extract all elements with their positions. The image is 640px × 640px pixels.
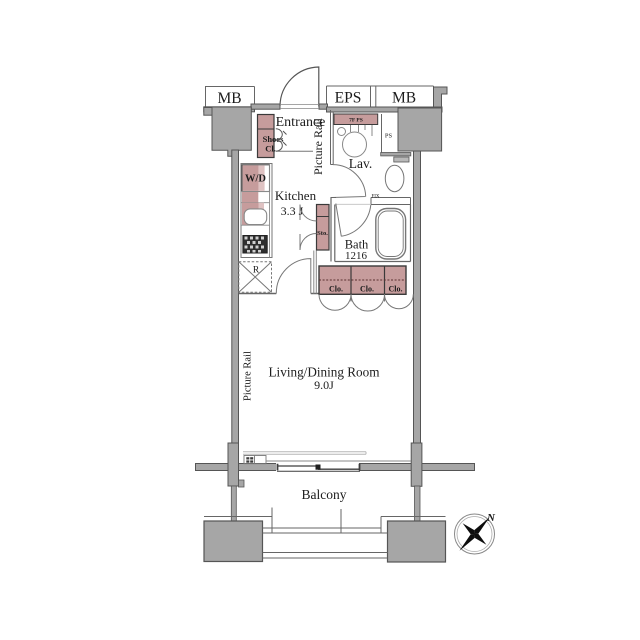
svg-text:PS: PS [385, 133, 393, 140]
svg-text:7F PS: 7F PS [349, 118, 363, 124]
svg-text:N: N [486, 512, 496, 524]
svg-text:Kitchen: Kitchen [275, 188, 317, 203]
svg-text:MB: MB [392, 90, 416, 107]
svg-text:R: R [253, 266, 260, 276]
svg-text:FIX: FIX [371, 195, 379, 200]
svg-text:EPS: EPS [335, 90, 362, 107]
svg-text:Clo.: Clo. [389, 285, 403, 294]
svg-text:Picture Rail: Picture Rail [243, 351, 254, 401]
svg-text:Cl.: Cl. [265, 143, 276, 153]
svg-text:9.0J: 9.0J [314, 378, 334, 392]
svg-text:Picture Rail: Picture Rail [311, 117, 325, 175]
svg-text:Balcony: Balcony [302, 487, 347, 502]
svg-text:MB: MB [217, 90, 241, 107]
svg-text:1216: 1216 [345, 250, 368, 262]
svg-text:W/D: W/D [245, 173, 266, 184]
svg-text:Sto.: Sto. [317, 230, 328, 237]
svg-text:Lav.: Lav. [349, 156, 373, 171]
svg-text:Clo.: Clo. [360, 285, 374, 294]
svg-text:Clo.: Clo. [329, 285, 343, 294]
